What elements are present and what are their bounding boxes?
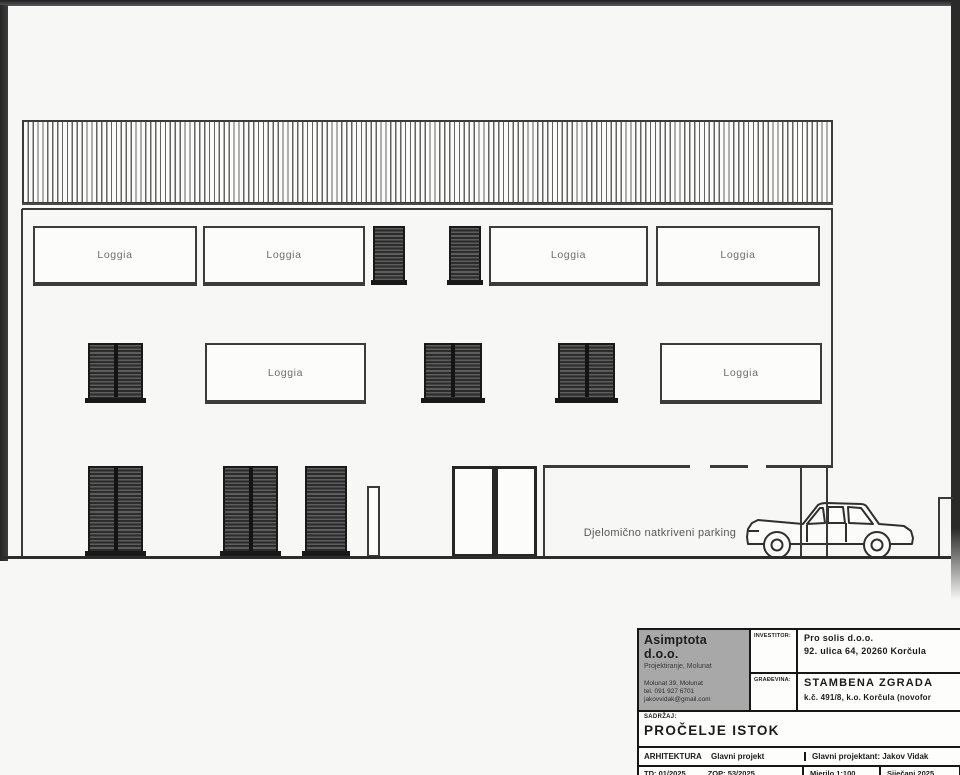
discipline-row: ARHITEKTURA Glavni projekt Glavni projek… (639, 748, 960, 767)
window-shutter (373, 226, 405, 285)
roof-hatching (22, 120, 833, 204)
shutter-divider (585, 343, 589, 397)
company-cell: Asimptota d.o.o. Projektiranje, Molunat … (639, 630, 751, 710)
title-block: Asimptota d.o.o. Projektiranje, Molunat … (637, 628, 960, 775)
parking-wall-line (543, 467, 545, 557)
loggia-box: Loggia (33, 226, 197, 286)
company-name: Asimptota d.o.o. (644, 633, 744, 662)
building-row: GRAĐEVINA: STAMBENA ZGRADA k.č. 491/8, k… (751, 674, 960, 710)
right-post-line (938, 497, 953, 499)
wall-edge-right (831, 209, 833, 468)
loggia-label: Loggia (97, 249, 132, 261)
window-sill (447, 280, 483, 285)
canopy-column-line (826, 467, 828, 557)
loggia-label: Loggia (720, 249, 755, 261)
company-phone: tel. 091 927 6701 (644, 688, 744, 696)
loggia-box: Loggia (205, 343, 366, 404)
title-block-row-parties: Asimptota d.o.o. Projektiranje, Molunat … (639, 630, 960, 712)
loggia-box: Loggia (656, 226, 820, 286)
loggia-box: Loggia (489, 226, 648, 286)
content-label: SADRŽAJ: (644, 714, 960, 720)
parking-ceiling-line (710, 465, 748, 468)
window-shutter (305, 466, 347, 557)
window-shutter-pair (88, 466, 143, 557)
parking-ceiling-line (766, 465, 832, 468)
investor-name: Pro solis d.o.o. (804, 633, 960, 643)
shutter-divider (451, 343, 455, 397)
date-cell: Siječanj 2025 (881, 767, 960, 775)
shutter-divider (114, 466, 118, 551)
canopy-column-line (800, 467, 802, 557)
loggia-label: Loggia (266, 249, 301, 261)
drawing-title: PROČELJE ISTOK (644, 723, 960, 738)
loggia-label: Loggia (551, 249, 586, 261)
window-shutter-pair (424, 343, 482, 403)
shutter-louvers (449, 226, 481, 283)
loggia-label: Loggia (723, 367, 758, 379)
investor-row: INVESTITOR: Pro solis d.o.o. 92. ulica 6… (751, 630, 960, 674)
ground-line (0, 556, 951, 559)
meta-td-zop: TD: 01/2025 ZOP: 53/2025 (639, 767, 804, 775)
shutter-louvers (373, 226, 405, 283)
right-post-line (938, 497, 940, 557)
investor-address: 92. ulica 64, 20260 Korčula (804, 646, 960, 656)
shutter-divider (114, 343, 118, 397)
company-address: Molunat 39, Molunat (644, 680, 744, 688)
building-parcel: k.č. 491/8, k.o. Korčula (novofor (804, 693, 960, 702)
building-name: STAMBENA ZGRADA (804, 677, 960, 689)
project-type: Glavni projekt (711, 752, 804, 761)
chief-designer: Glavni projektant: Jakov Vidak (804, 752, 960, 761)
window-shutter (449, 226, 481, 285)
window-shutter-pair (223, 466, 278, 557)
entrance-door (452, 466, 537, 557)
window-sill (421, 398, 485, 403)
scanned-elevation-drawing: Loggia Loggia Loggia Loggia Loggia Loggi… (0, 0, 960, 775)
parking-label: Djelomično natkriveni parking (545, 527, 775, 539)
door-divider (492, 469, 498, 554)
window-shutter-pair (88, 343, 143, 403)
zop-number: ZOP: 53/2025 (708, 769, 755, 775)
window-shutter-pair (558, 343, 615, 403)
company-email: jakovvidak@gmail.com (644, 696, 744, 704)
building-label: GRAĐEVINA: (751, 674, 798, 710)
content-row: SADRŽAJ: PROČELJE ISTOK (639, 712, 960, 748)
shutter-divider (249, 466, 253, 551)
parking-ceiling-line (543, 465, 690, 468)
scan-border-left (0, 5, 8, 561)
wall-edge-left (21, 209, 23, 558)
loggia-label: Loggia (268, 367, 303, 379)
scan-border-top (0, 0, 960, 6)
scale-cell: Mjerilo 1:100 (804, 767, 881, 775)
car-illustration (745, 490, 920, 560)
scan-border-right (951, 0, 960, 600)
loggia-box: Loggia (660, 343, 822, 404)
window-sill (371, 280, 407, 285)
td-number: TD: 01/2025 (644, 769, 686, 775)
window-sill (555, 398, 618, 403)
facade-pilaster (367, 486, 380, 557)
shutter-louvers (305, 466, 347, 555)
loggia-box: Loggia (203, 226, 365, 286)
investor-label: INVESTITOR: (751, 630, 798, 672)
meta-row: TD: 01/2025 ZOP: 53/2025 Mjerilo 1:100 S… (639, 767, 960, 775)
window-sill (85, 398, 146, 403)
company-subtitle: Projektiranje, Molunat (644, 663, 744, 671)
discipline: ARHITEKTURA (639, 752, 711, 761)
eave-band (22, 203, 833, 210)
